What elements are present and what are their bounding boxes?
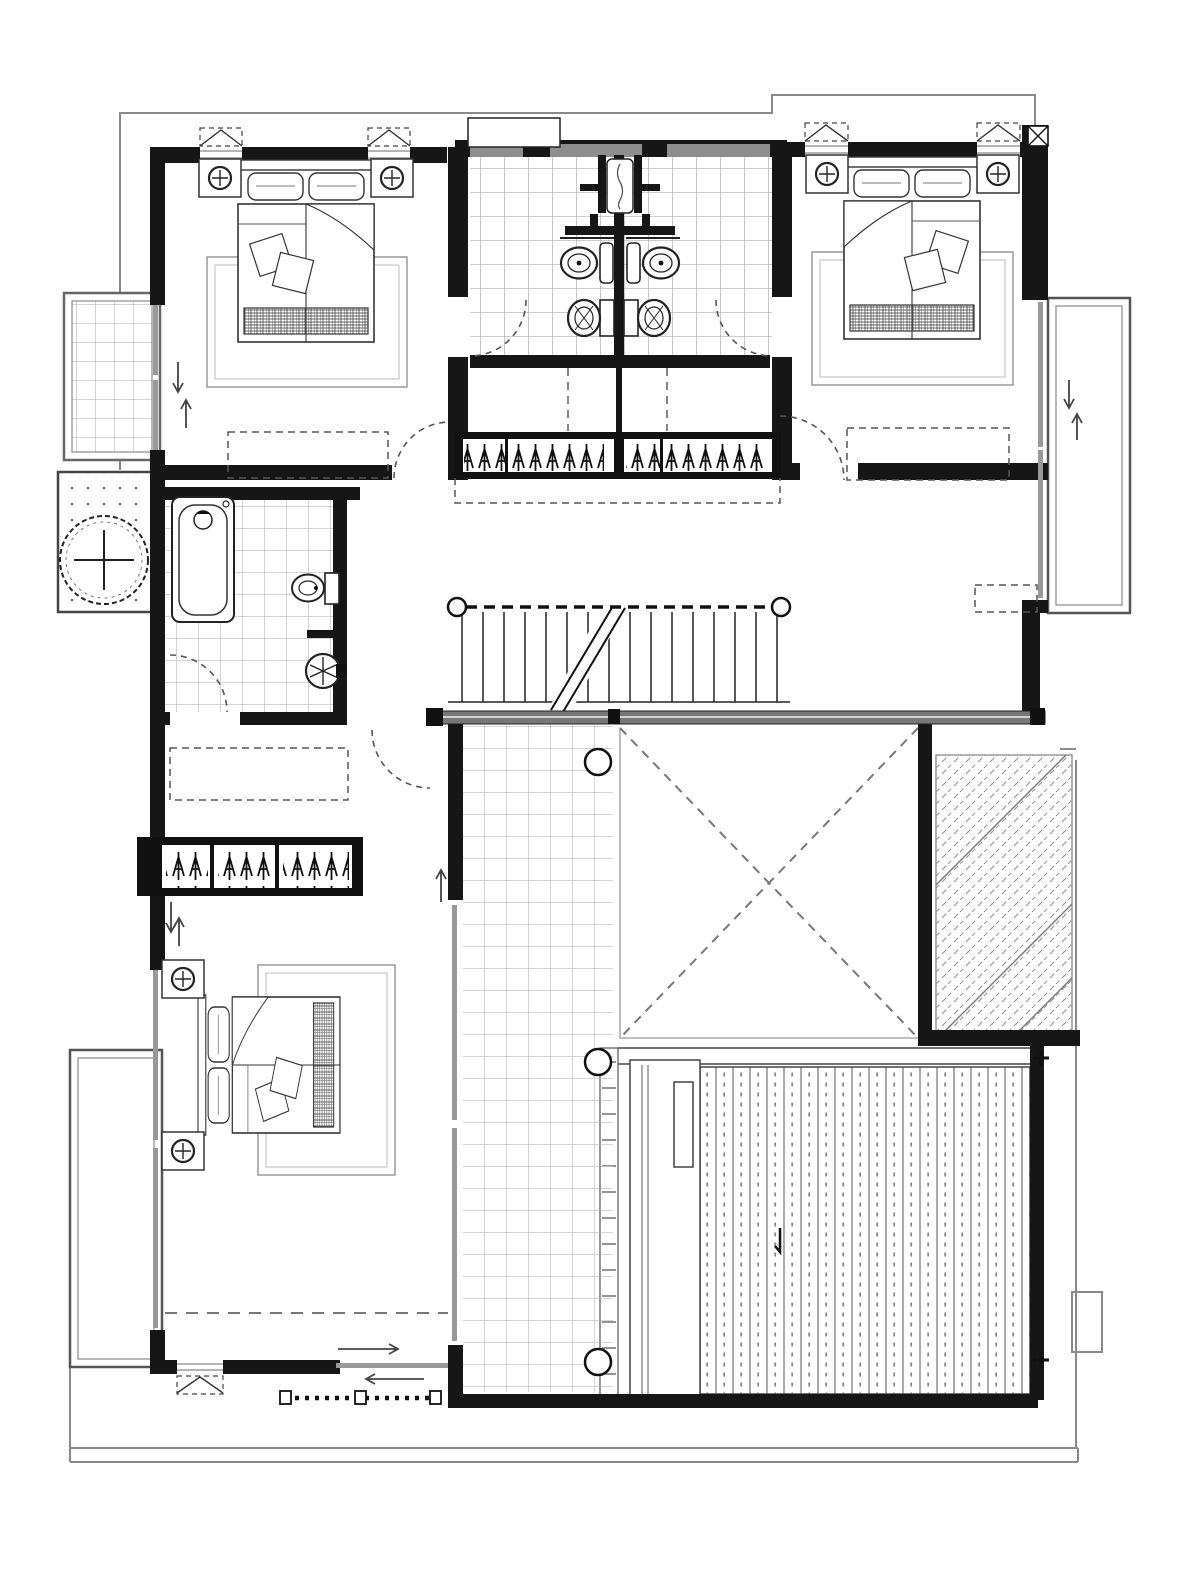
nightstand-lamp <box>977 155 1019 193</box>
sloped-roof-hatch <box>936 755 1072 1045</box>
nightstand-lamp <box>162 1132 204 1170</box>
floor-plan <box>0 0 1200 1576</box>
courtyard-planter <box>58 472 152 612</box>
toilet <box>292 573 339 604</box>
nightstand-lamp <box>162 960 204 998</box>
door-swing <box>394 422 450 478</box>
balcony-top-right <box>1048 298 1130 613</box>
nightstand-lamp <box>371 159 413 197</box>
balcony-top-left <box>64 293 160 460</box>
roof-feature <box>468 118 560 147</box>
gallery-railing <box>426 708 1045 726</box>
double-height-void <box>620 728 918 1038</box>
bed-top-right <box>842 157 982 339</box>
casement-window <box>200 128 242 163</box>
staircase <box>448 598 790 712</box>
casement-window <box>368 128 410 163</box>
nightstand-lamp <box>806 155 848 193</box>
balcony-bottom-left <box>70 1050 162 1367</box>
newel-post <box>448 598 466 616</box>
nightstand-lamp <box>199 159 241 197</box>
casement-window <box>805 123 848 157</box>
bench-box <box>674 1082 693 1167</box>
closet-wardrobe <box>455 433 780 478</box>
door-swing <box>372 730 430 788</box>
dashed-projection <box>170 748 348 800</box>
dotted-fence <box>280 1391 441 1404</box>
bathtub <box>172 497 234 622</box>
column-x-icon <box>1028 126 1048 146</box>
wardrobe-dashed-outline <box>455 478 780 503</box>
planter-strip <box>630 1060 700 1400</box>
newel-post <box>772 598 790 616</box>
casement-window-bottom <box>177 1360 223 1394</box>
casement-window <box>977 123 1020 157</box>
bed-top-left <box>236 160 376 342</box>
void-x-cross <box>620 728 918 1038</box>
master-wardrobe <box>138 838 362 895</box>
bed-master <box>198 995 340 1135</box>
